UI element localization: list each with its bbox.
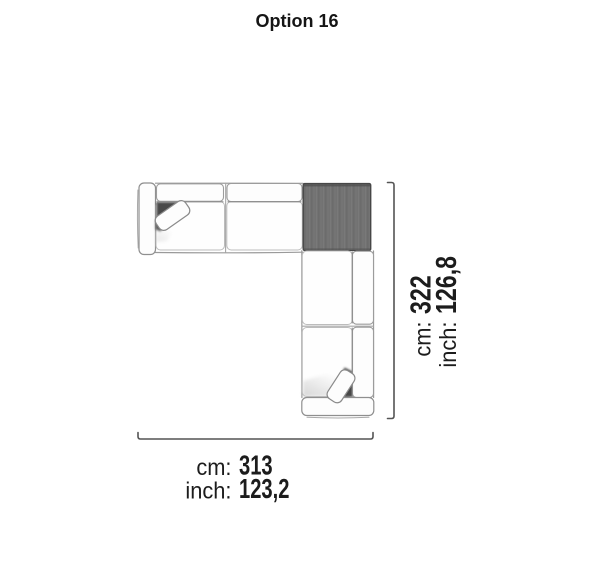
svg-text:123,2: 123,2 [239, 474, 289, 505]
svg-text:cm:: cm: [410, 322, 436, 357]
svg-text:Option 16: Option 16 [255, 11, 338, 31]
svg-text:126,8: 126,8 [429, 256, 462, 314]
svg-text:cm:: cm: [196, 454, 231, 480]
svg-text:inch:: inch: [435, 322, 461, 368]
svg-text:inch:: inch: [185, 478, 231, 504]
